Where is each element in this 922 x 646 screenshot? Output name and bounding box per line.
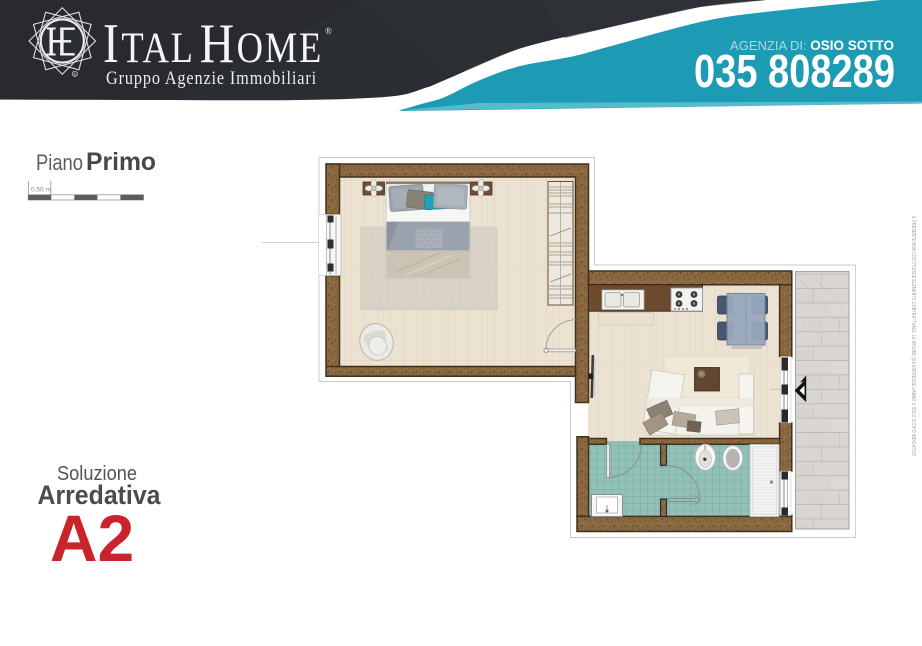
svg-text:IL PRESENTE NON COSTITUISCE EL: IL PRESENTE NON COSTITUISCE ELEMENTO CON… xyxy=(910,216,916,456)
svg-text:A2: A2 xyxy=(50,501,134,575)
svg-text:Primo: Primo xyxy=(86,148,156,176)
svg-text:Piano: Piano xyxy=(36,150,83,175)
svg-text:®: ® xyxy=(325,26,332,36)
svg-text:R: R xyxy=(73,72,76,77)
svg-text:Gruppo Agenzie Immobiliari: Gruppo Agenzie Immobiliari xyxy=(106,68,317,89)
svg-text:0.50 m: 0.50 m xyxy=(31,187,51,194)
svg-text:035 808289: 035 808289 xyxy=(694,45,895,97)
